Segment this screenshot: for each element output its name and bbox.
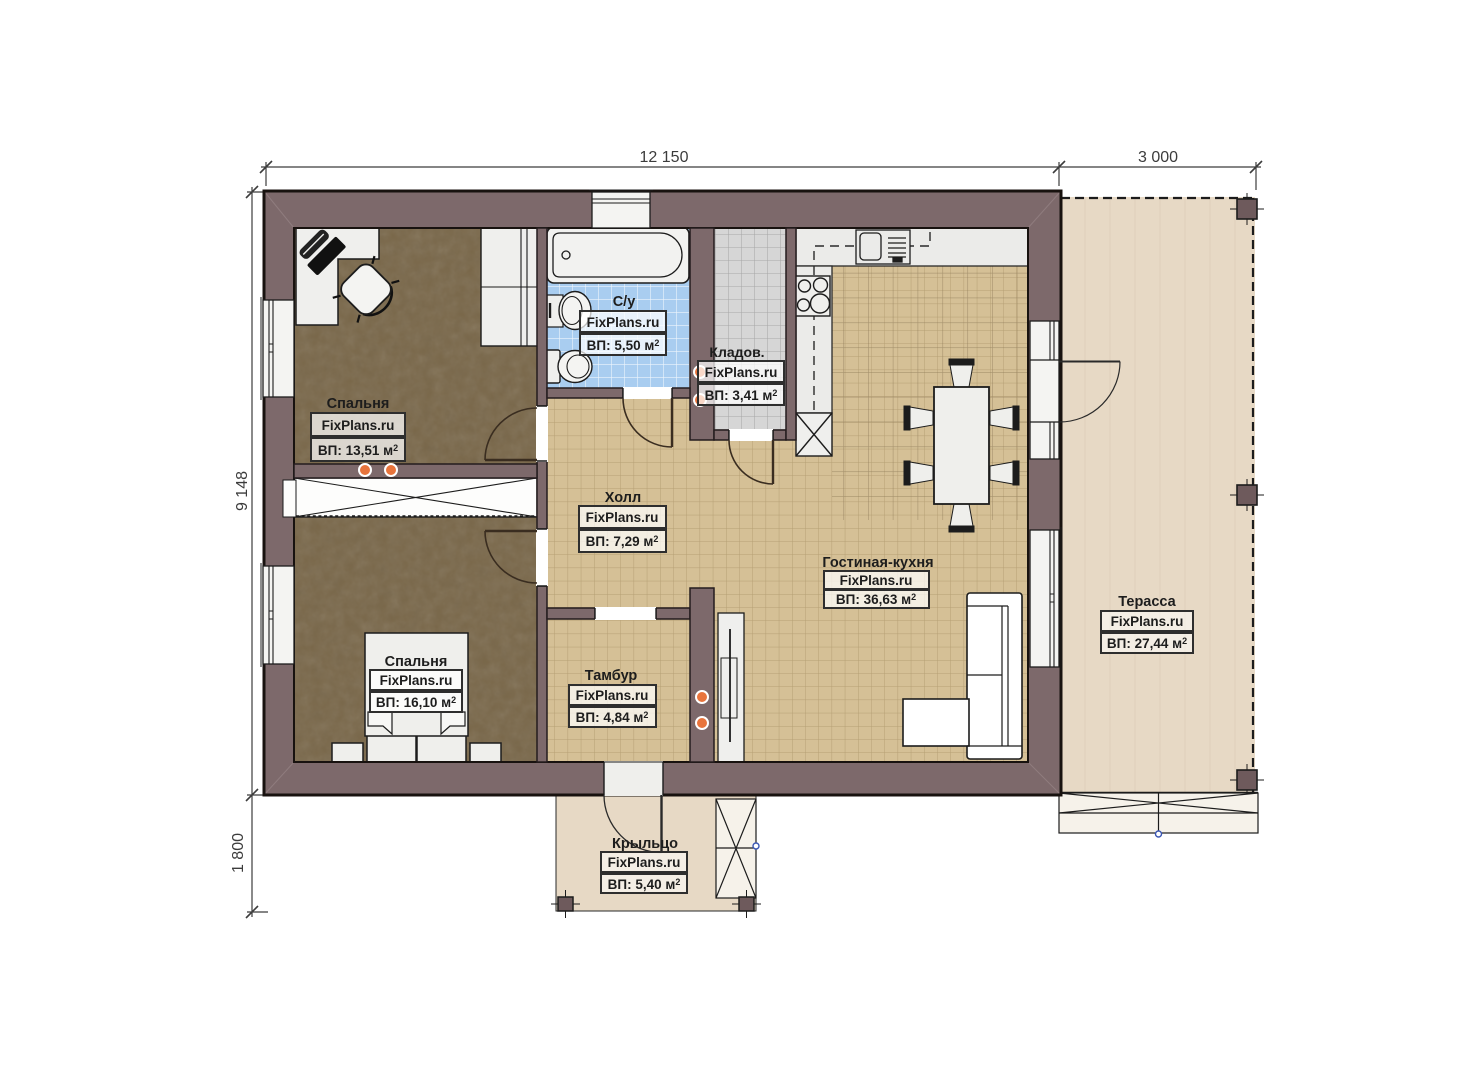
svg-text:Спальня: Спальня [385,654,448,670]
svg-text:ВП: 16,10 м2: ВП: 16,10 м2 [376,695,456,710]
svg-text:ВП: 36,63 м2: ВП: 36,63 м2 [836,592,916,607]
svg-text:Тамбур: Тамбур [585,668,638,684]
svg-text:Крыльцо: Крыльцо [612,836,678,852]
svg-text:Спальня: Спальня [327,396,390,412]
svg-text:ВП: 4,84 м2: ВП: 4,84 м2 [576,710,649,725]
svg-text:ВП: 27,44 м2: ВП: 27,44 м2 [1107,636,1187,651]
svg-text:ВП: 13,51 м2: ВП: 13,51 м2 [318,443,398,458]
svg-text:ВП: 5,40 м2: ВП: 5,40 м2 [608,877,681,892]
svg-text:ВП: 3,41 м2: ВП: 3,41 м2 [705,388,778,403]
svg-text:9 148: 9 148 [234,471,251,511]
svg-text:С/у: С/у [613,294,636,310]
svg-text:FixPlans.ru: FixPlans.ru [576,688,649,703]
svg-text:FixPlans.ru: FixPlans.ru [840,573,913,588]
svg-text:FixPlans.ru: FixPlans.ru [322,418,395,433]
svg-text:Терасса: Терасса [1118,594,1176,610]
svg-text:ВП: 5,50 м2: ВП: 5,50 м2 [587,338,660,353]
svg-text:FixPlans.ru: FixPlans.ru [587,315,660,330]
svg-text:Кладов.: Кладов. [709,344,764,360]
svg-text:FixPlans.ru: FixPlans.ru [380,673,453,688]
svg-text:Холл: Холл [605,490,641,506]
svg-text:FixPlans.ru: FixPlans.ru [1111,614,1184,629]
svg-text:FixPlans.ru: FixPlans.ru [586,510,659,525]
svg-text:FixPlans.ru: FixPlans.ru [705,365,778,380]
svg-text:12 150: 12 150 [640,149,689,166]
svg-text:FixPlans.ru: FixPlans.ru [608,855,681,870]
svg-text:3 000: 3 000 [1138,149,1178,166]
svg-text:Гостиная-кухня: Гостиная-кухня [822,555,933,571]
svg-text:ВП: 7,29 м2: ВП: 7,29 м2 [586,534,659,549]
svg-text:1 800: 1 800 [230,833,247,873]
